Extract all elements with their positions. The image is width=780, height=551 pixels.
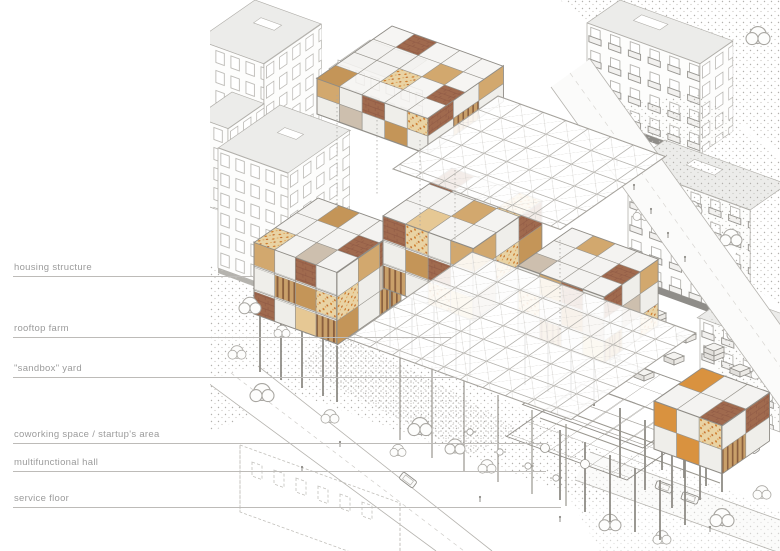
label-multifunctional-hall: multifunctional hall [13, 457, 546, 472]
label-housing-structure: housing structure [13, 262, 255, 277]
label-text: service floor [14, 493, 69, 504]
label-text: rooftop farm [14, 323, 69, 334]
label-coworking-space: coworking space / startup's area [13, 429, 546, 444]
label-text: housing structure [14, 262, 92, 273]
label-text: coworking space / startup's area [14, 429, 160, 440]
architectural-axonometric: housing structure rooftop farm "sandbox"… [0, 0, 780, 551]
label-service-floor: service floor [13, 493, 561, 508]
label-text: multifunctional hall [14, 457, 98, 468]
label-rooftop-farm: rooftop farm [13, 323, 451, 338]
label-text: "sandbox" yard [14, 363, 82, 374]
label-sandbox-yard: "sandbox" yard [13, 363, 456, 378]
